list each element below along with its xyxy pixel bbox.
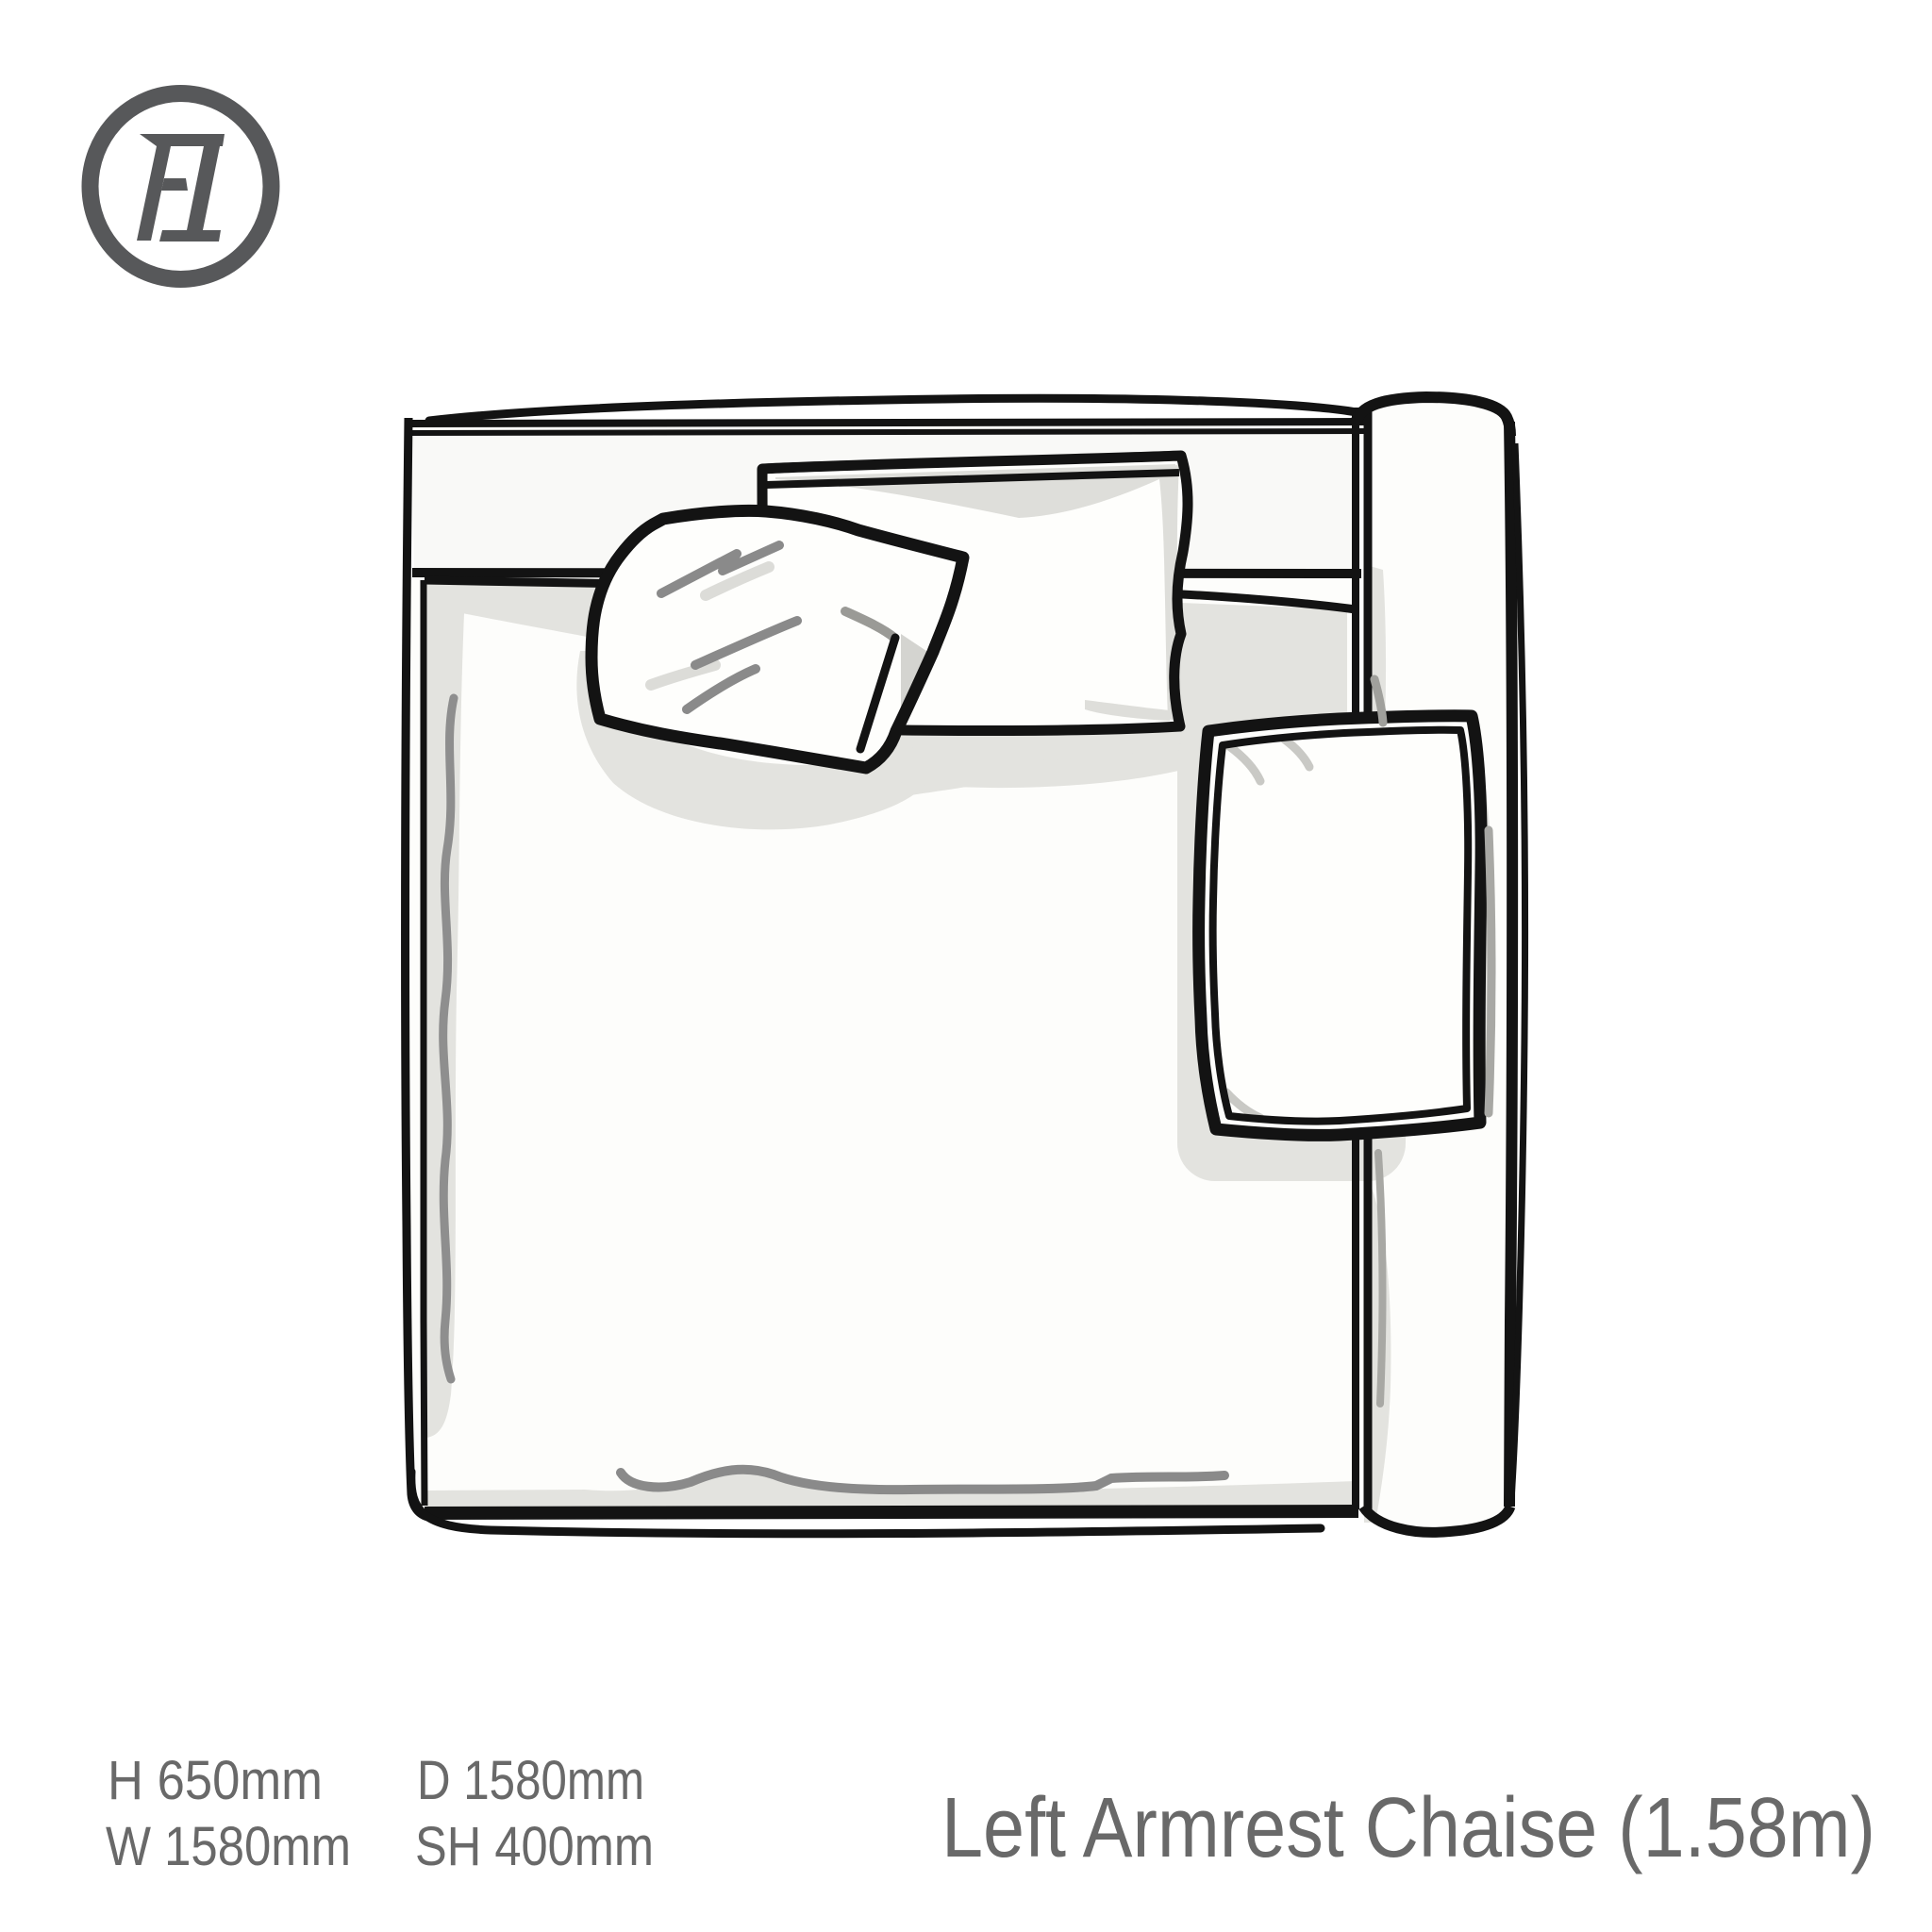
svg-text:H 650mm: H 650mm [108,1750,323,1811]
svg-text:Left Armrest Chaise (1.58m): Left Armrest Chaise (1.58m) [941,1781,1875,1875]
svg-text:SH 400mm: SH 400mm [415,1816,654,1877]
svg-text:D 1580mm: D 1580mm [417,1750,644,1811]
svg-text:W 1580mm: W 1580mm [106,1816,351,1877]
